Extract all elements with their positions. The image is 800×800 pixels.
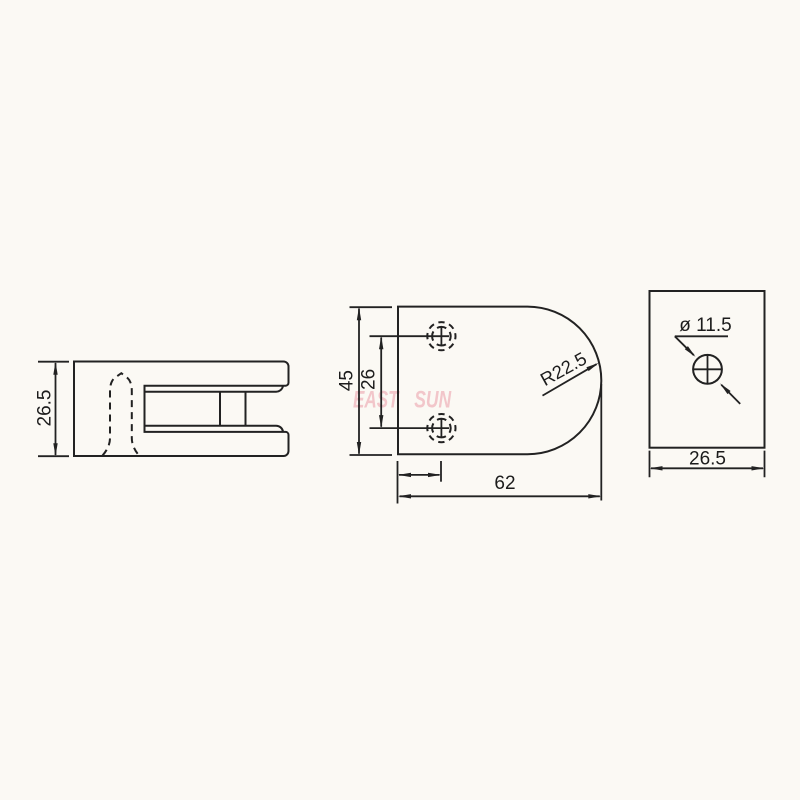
svg-text:62: 62 <box>494 473 515 494</box>
svg-text:SUN: SUN <box>414 387 451 414</box>
svg-text:26.5: 26.5 <box>689 449 726 470</box>
svg-text:45: 45 <box>336 370 357 391</box>
svg-text:ø 11.5: ø 11.5 <box>679 315 731 336</box>
svg-text:26.5: 26.5 <box>35 390 56 427</box>
svg-text:26: 26 <box>359 369 380 390</box>
